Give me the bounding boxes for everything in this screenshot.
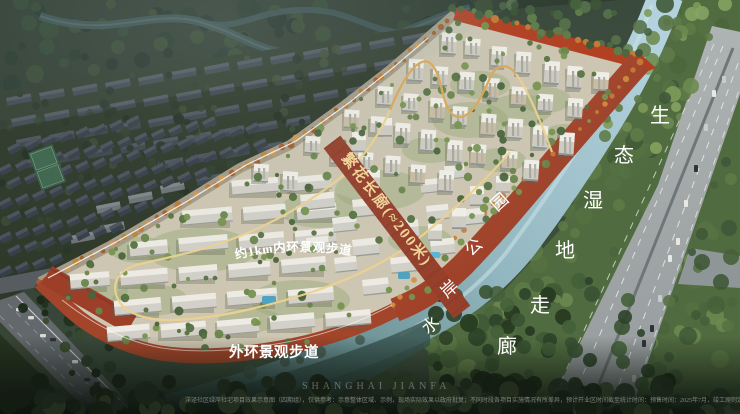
svg-text:走: 走 [530,294,550,317]
svg-text:外环景观步道: 外环景观步道 [229,343,319,361]
svg-text:洋泾社区绿岸社宅项目效果示意图（四期组），仅供参考：示意整体: 洋泾社区绿岸社宅项目效果示意图（四期组），仅供参考：示意整体区域、示例，现场实际… [185,396,740,404]
svg-text:廊: 廊 [497,335,517,358]
svg-text:生: 生 [650,104,670,127]
svg-text:态: 态 [614,144,634,167]
svg-text:湿: 湿 [583,189,603,212]
svg-text:地: 地 [555,239,575,262]
svg-text:SHANGHAI JIANFA: SHANGHAI JIANFA [302,381,450,392]
